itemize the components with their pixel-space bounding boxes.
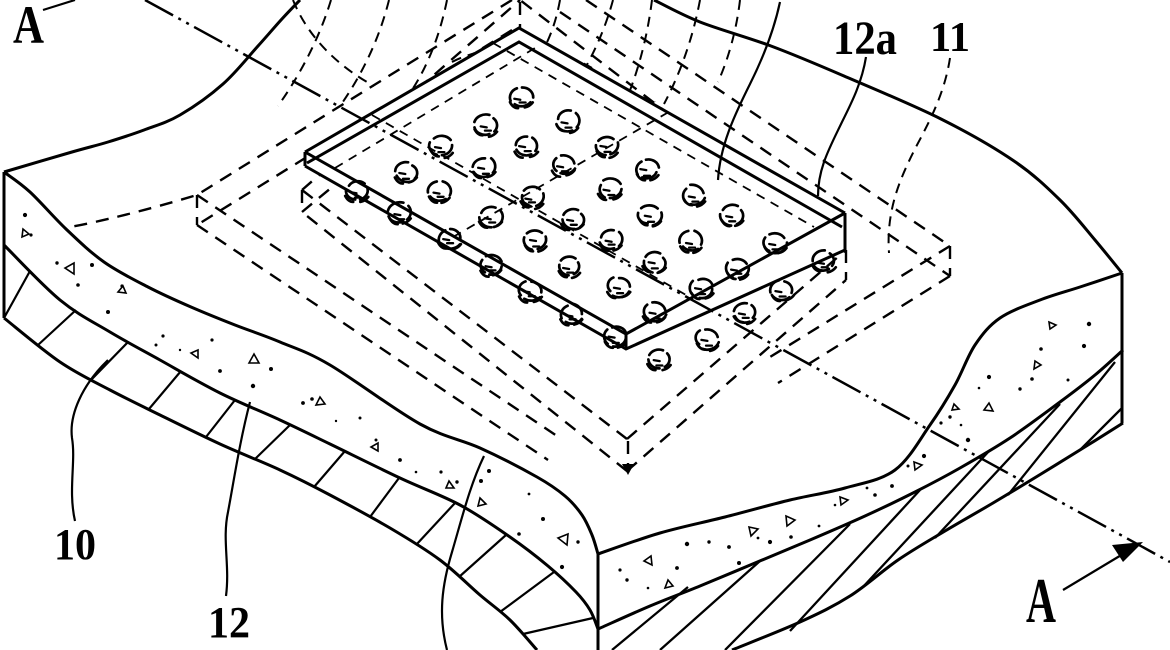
svg-text:A: A bbox=[1026, 565, 1056, 636]
svg-text:12a: 12a bbox=[833, 12, 897, 65]
svg-text:12: 12 bbox=[208, 598, 250, 647]
svg-text:11: 11 bbox=[930, 15, 970, 61]
svg-text:A: A bbox=[13, 0, 44, 55]
svg-text:10: 10 bbox=[54, 520, 96, 569]
